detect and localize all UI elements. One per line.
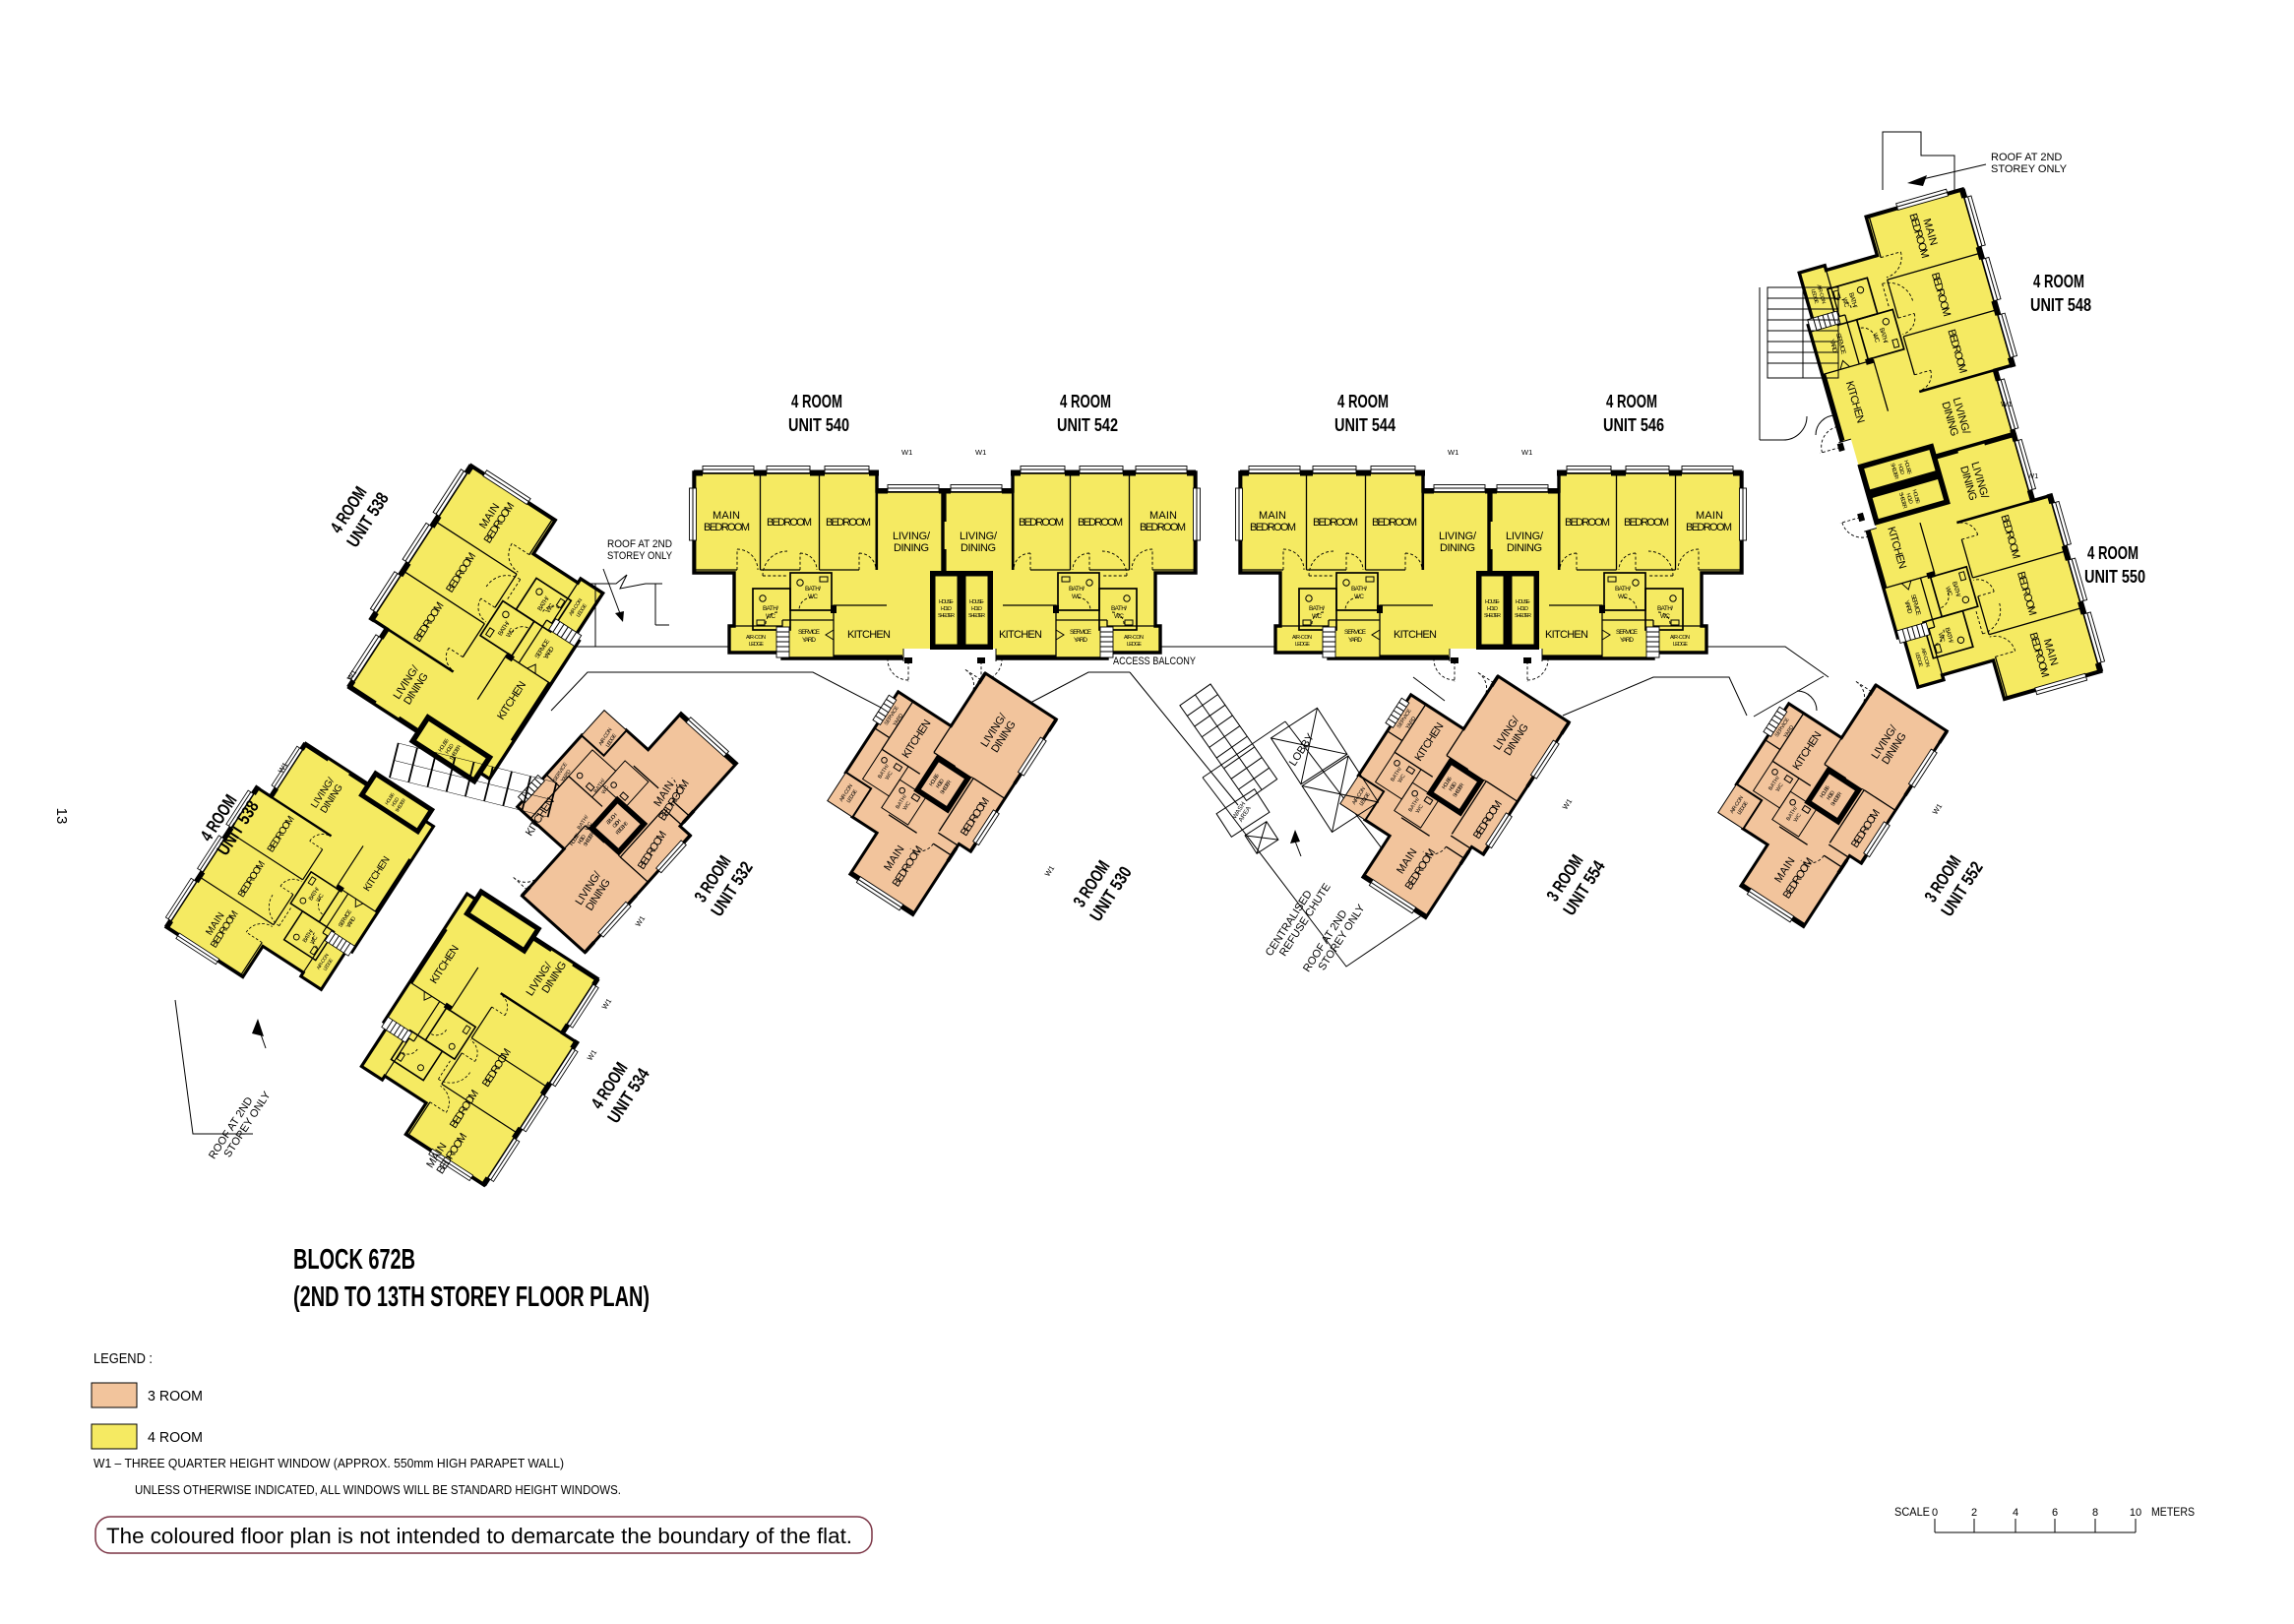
svg-text:(2ND TO 13TH STOREY FLOOR PLAN: (2ND TO 13TH STOREY FLOOR PLAN) [293,1281,650,1313]
svg-text:ROOF AT 2ND: ROOF AT 2ND [607,538,672,550]
svg-text:STOREY ONLY: STOREY ONLY [607,550,673,562]
svg-text:UNIT 548: UNIT 548 [2030,295,2091,315]
svg-text:6: 6 [2052,1507,2058,1519]
svg-text:4 ROOM: 4 ROOM [148,1429,203,1446]
svg-text:0: 0 [1932,1507,1938,1519]
svg-text:BLOCK 672B: BLOCK 672B [293,1244,415,1276]
svg-text:W1: W1 [901,448,912,457]
svg-text:LEGEND :: LEGEND : [93,1350,153,1367]
svg-text:The coloured floor plan is not: The coloured floor plan is not intended … [106,1524,852,1548]
svg-text:W1: W1 [1448,448,1458,457]
svg-text:2: 2 [1971,1507,1977,1519]
svg-text:STOREY ONLY: STOREY ONLY [1991,163,2068,175]
svg-text:UNIT 544: UNIT 544 [1334,415,1395,435]
svg-text:W1: W1 [2027,471,2038,480]
svg-text:W1 – THREE QUARTER HEIGHT: W1 – THREE QUARTER HEIGHT WINDOW (APPROX… [93,1456,564,1470]
svg-text:UNIT 542: UNIT 542 [1057,415,1118,435]
svg-text:METERS: METERS [2151,1505,2195,1519]
svg-text:4 ROOM: 4 ROOM [1606,392,1657,411]
svg-text:UNIT 540: UNIT 540 [788,415,849,435]
svg-text:4: 4 [2013,1507,2018,1519]
svg-text:4 ROOM: 4 ROOM [791,392,842,411]
svg-text:SCALE: SCALE [1894,1505,1930,1519]
svg-text:13: 13 [53,808,70,825]
svg-text:W1: W1 [975,448,986,457]
svg-text:3 ROOM: 3 ROOM [148,1388,203,1405]
svg-text:W1: W1 [2001,400,2012,408]
svg-text:UNLESS OTHERWISE INDICATED,: UNLESS OTHERWISE INDICATED, ALL WINDOWS … [135,1482,621,1497]
svg-text:10: 10 [2130,1507,2141,1519]
svg-text:UNIT 546: UNIT 546 [1603,415,1664,435]
svg-text:4 ROOM: 4 ROOM [2033,272,2084,291]
svg-text:4 ROOM: 4 ROOM [1060,392,1111,411]
svg-text:ACCESS BALCONY: ACCESS BALCONY [1113,656,1197,667]
svg-text:4 ROOM: 4 ROOM [1337,392,1389,411]
svg-text:ROOF AT 2ND: ROOF AT 2ND [1991,152,2062,163]
svg-text:UNIT 550: UNIT 550 [2084,567,2145,587]
svg-text:8: 8 [2092,1507,2098,1519]
svg-text:4 ROOM: 4 ROOM [2087,543,2139,563]
svg-text:W1: W1 [1521,448,1532,457]
